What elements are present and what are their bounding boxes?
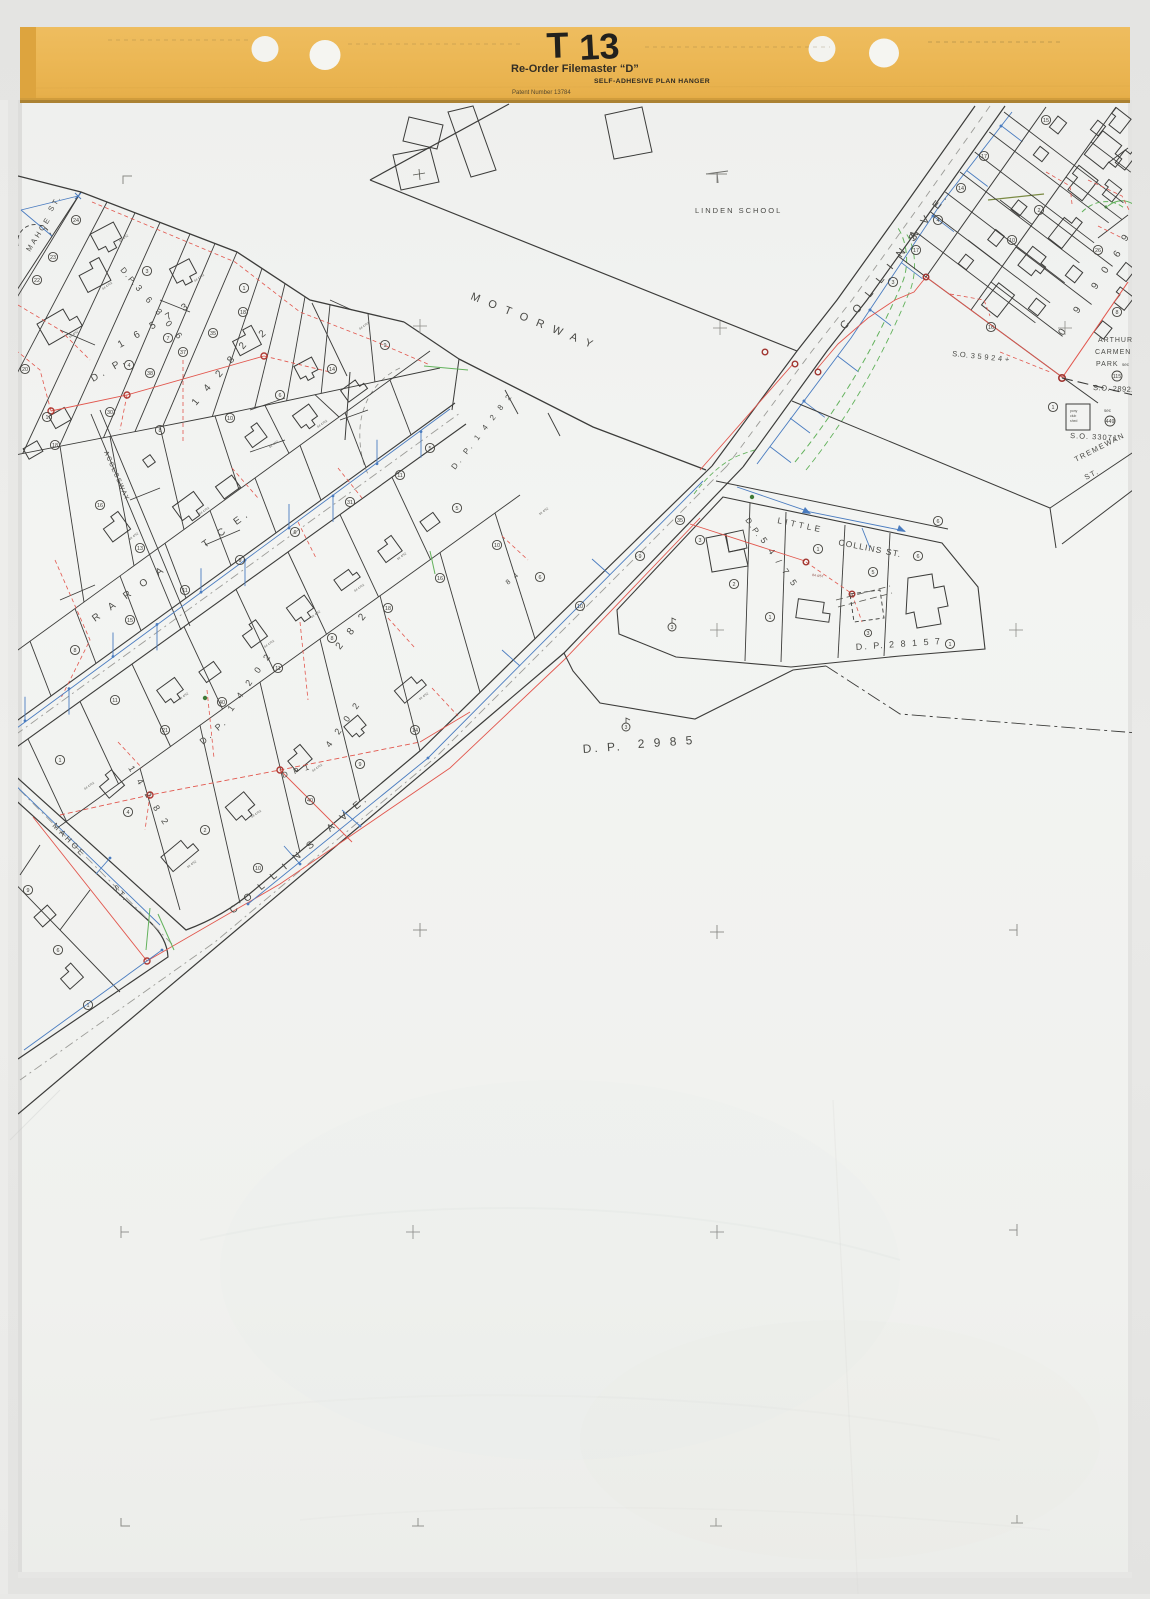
svg-text:10: 10 [227, 416, 233, 422]
svg-text:1: 1 [769, 615, 772, 621]
svg-text:22: 22 [34, 278, 40, 284]
svg-text:5: 5 [456, 506, 459, 512]
svg-text:115: 115 [1113, 374, 1122, 380]
svg-text:35: 35 [210, 331, 216, 337]
svg-text:16: 16 [437, 576, 443, 582]
svg-text:6: 6 [539, 575, 542, 581]
svg-text:24: 24 [73, 218, 79, 224]
svg-text:1: 1 [243, 286, 246, 292]
svg-text:2: 2 [733, 582, 736, 588]
svg-text:14: 14 [958, 186, 964, 192]
svg-text:10: 10 [1009, 238, 1015, 244]
svg-text:37: 37 [180, 350, 186, 356]
svg-text:3: 3 [699, 538, 702, 544]
svg-text:SELF-ADHESIVE PLAN HANGER: SELF-ADHESIVE PLAN HANGER [594, 78, 710, 85]
svg-text:sec: sec [1122, 362, 1130, 367]
svg-text:16: 16 [97, 503, 103, 509]
svg-text:1: 1 [1052, 405, 1055, 411]
svg-text:9: 9 [359, 762, 362, 768]
svg-text:8: 8 [74, 648, 77, 654]
svg-text:PARK: PARK [1096, 361, 1119, 368]
svg-text:6: 6 [57, 948, 60, 954]
svg-text:40: 40 [307, 798, 313, 804]
svg-text:5: 5 [429, 446, 432, 452]
svg-text:9: 9 [239, 558, 242, 564]
svg-text:D. P.: D. P. [582, 739, 623, 756]
svg-text:14: 14 [412, 728, 418, 734]
svg-text:2: 2 [204, 828, 207, 834]
svg-text:31: 31 [347, 500, 353, 506]
svg-text:1: 1 [46, 415, 49, 421]
svg-text:13: 13 [578, 25, 620, 68]
svg-text:3: 3 [146, 269, 149, 275]
svg-text:9: 9 [27, 888, 30, 894]
svg-text:1: 1 [59, 758, 62, 764]
svg-text:11: 11 [397, 473, 403, 479]
svg-text:pony: pony [1070, 409, 1078, 413]
svg-text:Patent Number 13784: Patent Number 13784 [512, 90, 571, 96]
svg-text:11: 11 [275, 666, 281, 672]
svg-text:26: 26 [1095, 248, 1101, 254]
svg-text:8: 8 [331, 636, 334, 642]
svg-text:8: 8 [159, 428, 162, 434]
svg-text:shed: shed [1070, 419, 1077, 423]
svg-text:40: 40 [219, 700, 225, 706]
svg-text:13: 13 [137, 546, 143, 552]
svg-text:2: 2 [1038, 208, 1041, 214]
svg-text:10: 10 [255, 866, 261, 872]
svg-text:LINDEN SCHOOL: LINDEN SCHOOL [695, 206, 782, 215]
svg-text:1: 1 [87, 1003, 90, 1009]
svg-text:T: T [546, 24, 569, 66]
svg-text:10: 10 [577, 604, 583, 610]
svg-text:16: 16 [988, 325, 994, 331]
svg-text:20: 20 [22, 367, 28, 373]
svg-text:3: 3 [892, 280, 895, 286]
svg-text:23: 23 [50, 255, 56, 261]
svg-text:6: 6 [917, 554, 920, 560]
svg-text:14: 14 [329, 367, 335, 373]
svg-text:1: 1 [949, 642, 952, 648]
svg-text:4: 4 [937, 218, 940, 224]
svg-text:5: 5 [872, 570, 875, 576]
svg-text:38: 38 [147, 371, 153, 377]
svg-text:17: 17 [981, 154, 987, 160]
svg-text:35: 35 [677, 518, 683, 524]
svg-text:ARTHUR: ARTHUR [1098, 337, 1133, 344]
svg-text:18: 18 [240, 310, 246, 316]
svg-text:3: 3 [671, 625, 674, 631]
svg-text:3: 3 [867, 631, 870, 637]
svg-text:15: 15 [1043, 118, 1049, 124]
svg-text:8: 8 [1116, 310, 1119, 316]
svg-text:Re-Order Filemaster “D”: Re-Order Filemaster “D” [511, 63, 639, 75]
svg-text:CARMEN: CARMEN [1095, 349, 1131, 356]
svg-text:club: club [1070, 414, 1076, 418]
svg-text:9: 9 [384, 343, 387, 349]
svg-text:10: 10 [494, 543, 500, 549]
svg-text:17: 17 [913, 248, 919, 254]
svg-text:18: 18 [52, 443, 58, 449]
svg-text:11: 11 [112, 698, 118, 704]
svg-text:449: 449 [1106, 419, 1115, 425]
svg-text:21: 21 [162, 728, 168, 734]
svg-text:6: 6 [279, 393, 282, 399]
svg-text:4: 4 [127, 810, 130, 816]
svg-text:1: 1 [817, 547, 820, 553]
svg-text:sec: sec [1104, 408, 1112, 413]
svg-text:7: 7 [167, 336, 170, 342]
svg-text:18: 18 [385, 606, 391, 612]
svg-text:11: 11 [182, 588, 188, 594]
svg-text:6: 6 [294, 530, 297, 536]
svg-text:9: 9 [639, 554, 642, 560]
svg-text:3: 3 [625, 725, 628, 731]
svg-text:30: 30 [107, 410, 113, 416]
svg-text:6: 6 [937, 519, 940, 525]
svg-text:15: 15 [127, 618, 133, 624]
